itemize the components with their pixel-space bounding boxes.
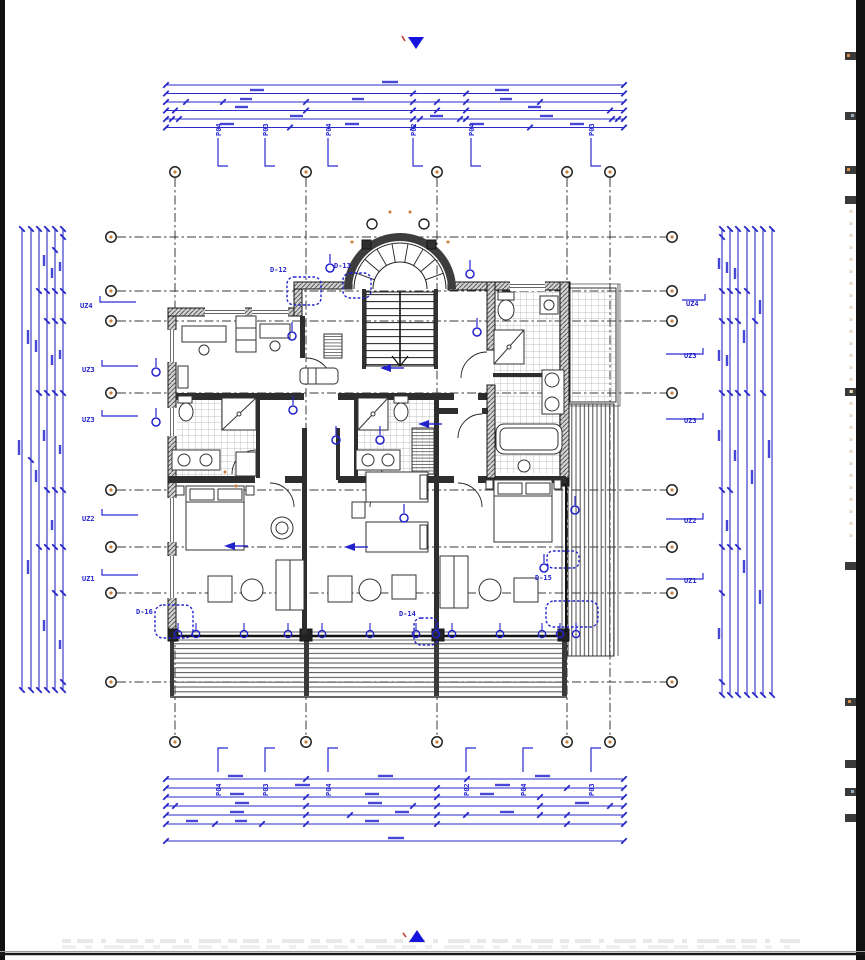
dimension-block-bottom bbox=[166, 776, 624, 841]
po-labels-bottom: P04 P03 P04 P02 P04 P03 bbox=[215, 748, 601, 796]
floor-plan-drawing: P04 P03 P04 P02 P04 P03 P04 P03 P04 P02 … bbox=[0, 0, 865, 960]
staircase bbox=[357, 244, 443, 369]
uz-label[interactable]: UZ3 bbox=[684, 352, 697, 360]
section-red-tick bbox=[402, 36, 405, 41]
section-red-tick bbox=[403, 933, 406, 937]
callout-label-d12[interactable]: D-12 bbox=[270, 266, 287, 274]
po-label[interactable]: P02 bbox=[463, 783, 471, 796]
po-labels-top: P04 P03 P04 P02 P04 P03 bbox=[215, 123, 601, 166]
exterior-wall-top-right bbox=[448, 282, 570, 290]
uz-label[interactable]: UZ2 bbox=[82, 515, 95, 523]
left-edge-bar bbox=[0, 0, 5, 960]
section-triangle-down-icon bbox=[408, 37, 424, 49]
section-marker-bottom[interactable] bbox=[403, 930, 425, 942]
po-label[interactable]: P04 bbox=[325, 123, 333, 136]
callout-label-d16[interactable]: D-16 bbox=[136, 608, 153, 616]
side-deck bbox=[568, 404, 614, 656]
dimension-text-smudges bbox=[220, 82, 584, 124]
dimension-text-smudges bbox=[719, 258, 769, 639]
bed bbox=[366, 522, 428, 552]
uz-label[interactable]: UZ4 bbox=[686, 300, 699, 308]
po-label[interactable]: P04 bbox=[468, 123, 476, 136]
callout-label-d14[interactable]: D-14 bbox=[399, 610, 416, 618]
uz-labels-left: UZ4 UZ3 UZ3 UZ2 UZ1 bbox=[80, 296, 138, 583]
terrace-tiles bbox=[570, 288, 616, 402]
po-label[interactable]: P03 bbox=[262, 123, 270, 136]
dimension-text-smudges bbox=[186, 776, 589, 838]
po-label[interactable]: P04 bbox=[215, 783, 223, 796]
uz-label[interactable]: UZ3 bbox=[684, 417, 697, 425]
uz-label[interactable]: UZ1 bbox=[684, 577, 697, 585]
po-label[interactable]: P02 bbox=[410, 123, 418, 136]
right-edge-bar bbox=[856, 0, 865, 960]
dimension-block-left bbox=[19, 229, 63, 690]
callout-label-d15[interactable]: D-15 bbox=[535, 574, 552, 582]
po-label[interactable]: P03 bbox=[588, 783, 596, 796]
po-label[interactable]: P03 bbox=[588, 123, 596, 136]
po-label[interactable]: P04 bbox=[215, 123, 223, 136]
section-marker-top[interactable] bbox=[402, 36, 424, 49]
po-label[interactable]: P04 bbox=[325, 783, 333, 796]
cad-floorplan-viewport: P04 P03 P04 P02 P04 P03 P04 P03 P04 P02 … bbox=[0, 0, 865, 960]
balcony-deck bbox=[170, 640, 567, 696]
dimension-block-right bbox=[719, 229, 772, 695]
ghost-text-row bbox=[62, 941, 800, 947]
uz-label[interactable]: UZ1 bbox=[82, 575, 95, 583]
po-label[interactable]: P03 bbox=[262, 783, 270, 796]
bed bbox=[366, 472, 428, 502]
uz-label[interactable]: UZ4 bbox=[80, 302, 93, 310]
uz-label[interactable]: UZ3 bbox=[82, 416, 95, 424]
po-label[interactable]: P04 bbox=[520, 783, 528, 796]
section-triangle-up-icon bbox=[409, 930, 425, 942]
uz-label[interactable]: UZ3 bbox=[82, 366, 95, 374]
callout-label-d13[interactable]: D-13 bbox=[334, 262, 351, 270]
dimension-block-top bbox=[166, 82, 624, 128]
uz-label[interactable]: UZ2 bbox=[684, 517, 697, 525]
right-edge-fragments bbox=[845, 52, 856, 822]
